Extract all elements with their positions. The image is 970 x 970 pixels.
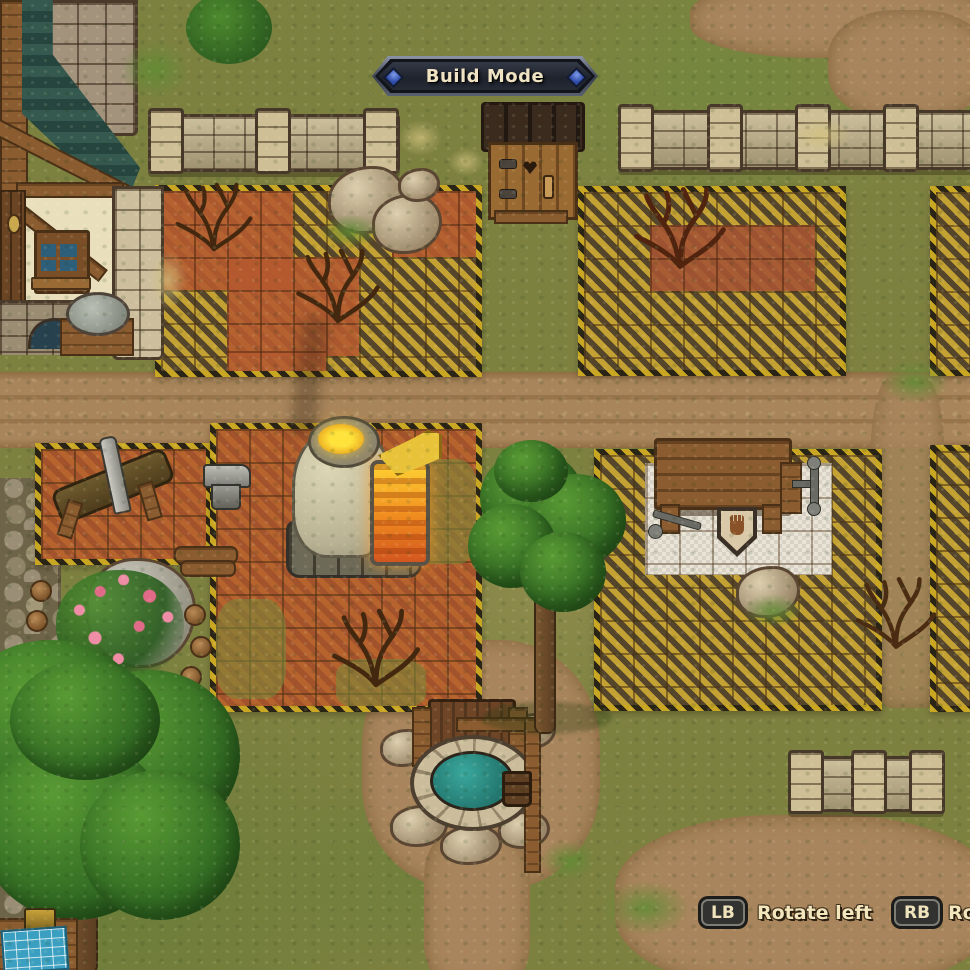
hint-rotate-left: Rotate left [757, 902, 872, 924]
hand-icon-fingers [730, 515, 744, 521]
grass-tuft [120, 40, 190, 100]
dry-grass-tuft [792, 118, 852, 152]
window-sill [31, 277, 91, 290]
fence-pillar [255, 108, 291, 174]
window-glass [41, 241, 77, 271]
keycap-lb: LB [701, 899, 745, 926]
grass-tuft [320, 214, 380, 248]
vise-jaw [780, 462, 802, 514]
door-hinge [499, 189, 517, 199]
keycap-rb-label: RB [904, 903, 930, 923]
banner-plate: Build Mode [378, 62, 592, 90]
dead-bush[interactable] [172, 182, 256, 252]
outhouse-body [488, 142, 578, 220]
door-hinge [499, 159, 517, 169]
vise-handle-knob [807, 456, 821, 470]
build-zone-grid [936, 451, 970, 706]
workbench-leg [762, 504, 782, 534]
tree-canopy [80, 770, 240, 920]
keycap-lb-label: LB [711, 903, 735, 923]
dry-grass-tuft [398, 120, 442, 156]
fence-pillar [788, 750, 824, 814]
saw-log[interactable] [50, 438, 178, 542]
dry-grass-tuft [448, 148, 484, 176]
grindstone-wheel [66, 292, 130, 336]
tree-center [462, 440, 632, 740]
game-viewport: Build Mode LB Rotate left RB Ro [0, 0, 970, 970]
fence-pillar [909, 750, 945, 814]
house-crossbeam [16, 182, 124, 198]
window [34, 230, 90, 294]
fence-pillar [707, 104, 743, 172]
fence-pillar [363, 108, 399, 174]
hand-drill-knob [648, 524, 663, 539]
fence-pillar [883, 104, 919, 172]
dead-bush[interactable] [328, 608, 424, 688]
hint-rotate-right-clipped: Ro [948, 902, 970, 924]
grass-tuft [880, 360, 950, 404]
furnace[interactable] [286, 416, 438, 578]
hand-icon [730, 519, 744, 535]
grass-tuft [600, 880, 690, 936]
blueprint-table[interactable] [0, 908, 80, 970]
dead-bush[interactable] [630, 186, 730, 270]
furnace-fire-chamber [370, 460, 430, 566]
door-handle [543, 175, 554, 199]
tree-canopy [10, 660, 160, 780]
anvil-base [211, 484, 241, 510]
blueprint-paper [1, 926, 70, 970]
tree-canopy [494, 440, 568, 502]
dead-bush[interactable] [292, 248, 384, 324]
keycap-rb: RB [894, 899, 940, 926]
outhouse-step [494, 210, 568, 224]
fence-pillar [618, 104, 654, 172]
tree-trunk [534, 590, 556, 734]
build-mode-banner: Build Mode [372, 56, 598, 96]
vise-handle-knob [807, 502, 821, 516]
outhouse[interactable] [486, 102, 574, 220]
workbench-top [654, 438, 792, 510]
log-post [30, 580, 52, 602]
banner-title: Build Mode [426, 66, 544, 87]
build-zone-grid [936, 192, 970, 370]
well-stone [440, 825, 502, 865]
outhouse-heart-cutout [523, 161, 537, 174]
tree-canopy [520, 532, 606, 612]
dead-bush[interactable] [852, 548, 940, 678]
dry-grass-tuft [148, 250, 188, 310]
grindstone[interactable] [56, 290, 136, 356]
anvil[interactable] [203, 460, 251, 512]
road-horizontal [0, 372, 970, 448]
grass-bush [186, 0, 272, 64]
fence-pillar [851, 750, 887, 814]
door-ornament [7, 214, 21, 234]
bucket [502, 771, 532, 807]
stacked-logs [180, 560, 236, 577]
build-zone-top-far-right[interactable] [930, 186, 970, 376]
stone-fence-top-left [148, 114, 400, 172]
grass-tuft [742, 594, 804, 628]
stone-fence-bottom-right [788, 756, 944, 812]
furnace-mouth-glow [318, 424, 364, 454]
